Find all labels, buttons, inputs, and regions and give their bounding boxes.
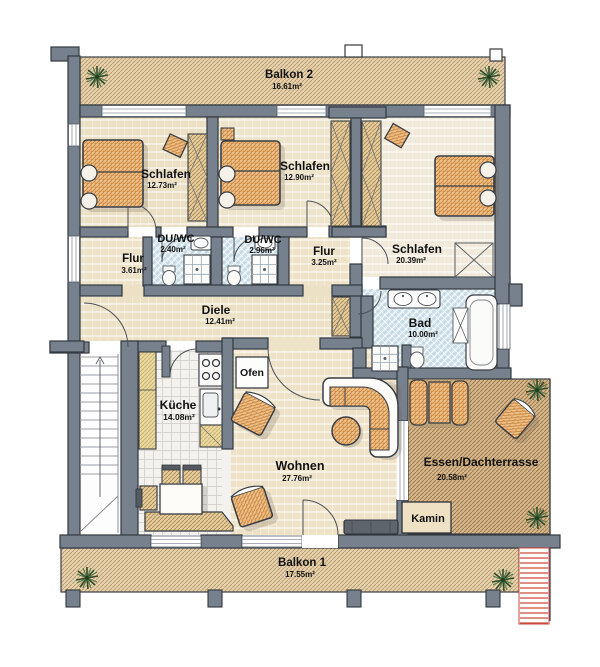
- svg-text:20.39m²: 20.39m²: [396, 256, 426, 265]
- svg-text:14.08m²: 14.08m²: [163, 412, 195, 422]
- svg-text:12.73m²: 12.73m²: [147, 181, 177, 190]
- svg-text:10.00m²: 10.00m²: [408, 330, 438, 339]
- svg-text:DU/WC: DU/WC: [244, 234, 281, 246]
- svg-text:Schlafen: Schlafen: [280, 159, 330, 173]
- svg-text:Essen/Dachterrasse: Essen/Dachterrasse: [424, 455, 539, 469]
- svg-text:Diele: Diele: [202, 303, 231, 317]
- svg-text:Schlafen: Schlafen: [141, 167, 191, 181]
- svg-text:16.61m²: 16.61m²: [272, 82, 302, 91]
- svg-text:2.40m²: 2.40m²: [160, 245, 186, 254]
- svg-text:2.96m²: 2.96m²: [249, 246, 275, 255]
- svg-text:17.55m²: 17.55m²: [285, 570, 315, 579]
- svg-text:Balkon 2: Balkon 2: [265, 69, 313, 81]
- svg-text:Wohnen: Wohnen: [275, 459, 324, 473]
- svg-text:Balkon 1: Balkon 1: [278, 557, 327, 569]
- svg-text:Flur: Flur: [313, 246, 335, 258]
- svg-text:27.76m²: 27.76m²: [282, 474, 312, 483]
- svg-text:Küche: Küche: [160, 398, 197, 412]
- svg-text:Ofen: Ofen: [240, 367, 264, 379]
- svg-text:Flur: Flur: [122, 253, 144, 265]
- svg-text:DU/WC: DU/WC: [157, 233, 194, 245]
- svg-text:Schlafen: Schlafen: [392, 242, 442, 256]
- svg-text:Kamin: Kamin: [411, 513, 445, 525]
- svg-text:3.25m²: 3.25m²: [311, 258, 337, 267]
- svg-text:12.90m²: 12.90m²: [284, 173, 314, 182]
- svg-text:Bad: Bad: [409, 316, 432, 330]
- svg-text:12.41m²: 12.41m²: [205, 317, 235, 326]
- svg-text:20.58m²: 20.58m²: [437, 473, 467, 482]
- svg-text:3.61m²: 3.61m²: [121, 266, 147, 275]
